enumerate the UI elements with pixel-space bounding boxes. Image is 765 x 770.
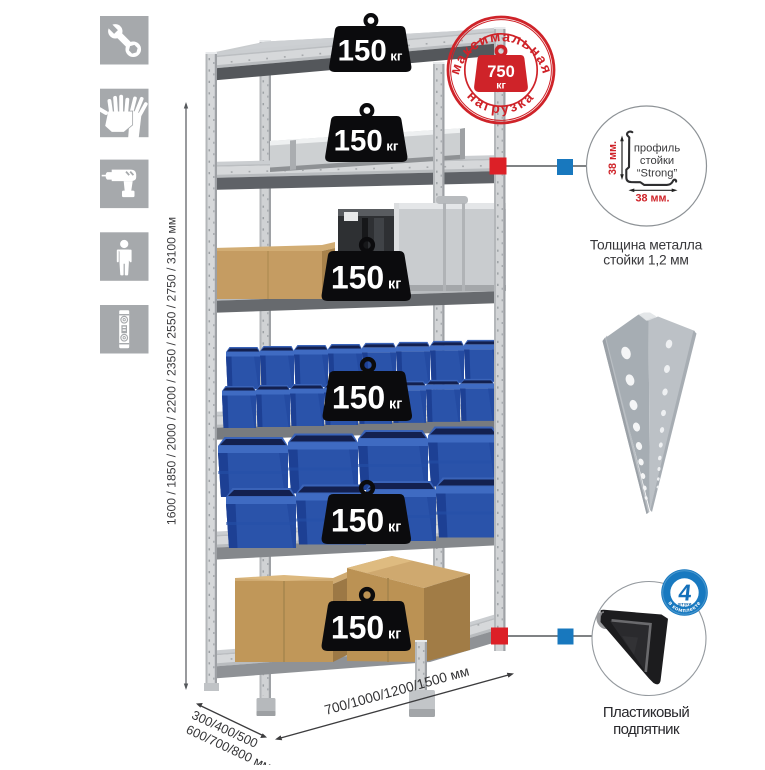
svg-text:кг: кг: [388, 277, 401, 293]
svg-text:150: 150: [334, 125, 383, 158]
svg-text:150: 150: [332, 380, 385, 416]
svg-text:150: 150: [331, 610, 384, 646]
svg-text:профиль: профиль: [634, 143, 680, 155]
svg-text:“Strong”: “Strong”: [637, 168, 678, 180]
svg-text:150: 150: [331, 260, 384, 296]
svg-text:кг: кг: [388, 627, 401, 643]
svg-text:Толщина металла: Толщина металла: [590, 238, 703, 253]
svg-text:150: 150: [338, 35, 387, 68]
svg-text:стойки 1,2 мм: стойки 1,2 мм: [603, 253, 688, 268]
svg-text:Пластиковый: Пластиковый: [603, 704, 689, 721]
svg-text:кг: кг: [389, 397, 402, 413]
svg-text:кг: кг: [390, 49, 403, 64]
svg-text:750: 750: [487, 63, 515, 81]
svg-text:кг: кг: [496, 80, 506, 92]
svg-text:38 мм.: 38 мм.: [636, 193, 670, 205]
svg-text:кг: кг: [388, 520, 401, 536]
svg-text:стойки: стойки: [640, 155, 674, 167]
svg-text:подпятник: подпятник: [613, 721, 680, 738]
svg-text:1600 / 1850 / 2000 / 2200 / 23: 1600 / 1850 / 2000 / 2200 / 2350 / 2550 …: [165, 217, 179, 525]
svg-text:кг: кг: [386, 139, 399, 154]
svg-text:150: 150: [331, 503, 384, 539]
svg-text:штуки: штуки: [678, 601, 692, 606]
svg-text:38 мм.: 38 мм.: [607, 141, 619, 175]
